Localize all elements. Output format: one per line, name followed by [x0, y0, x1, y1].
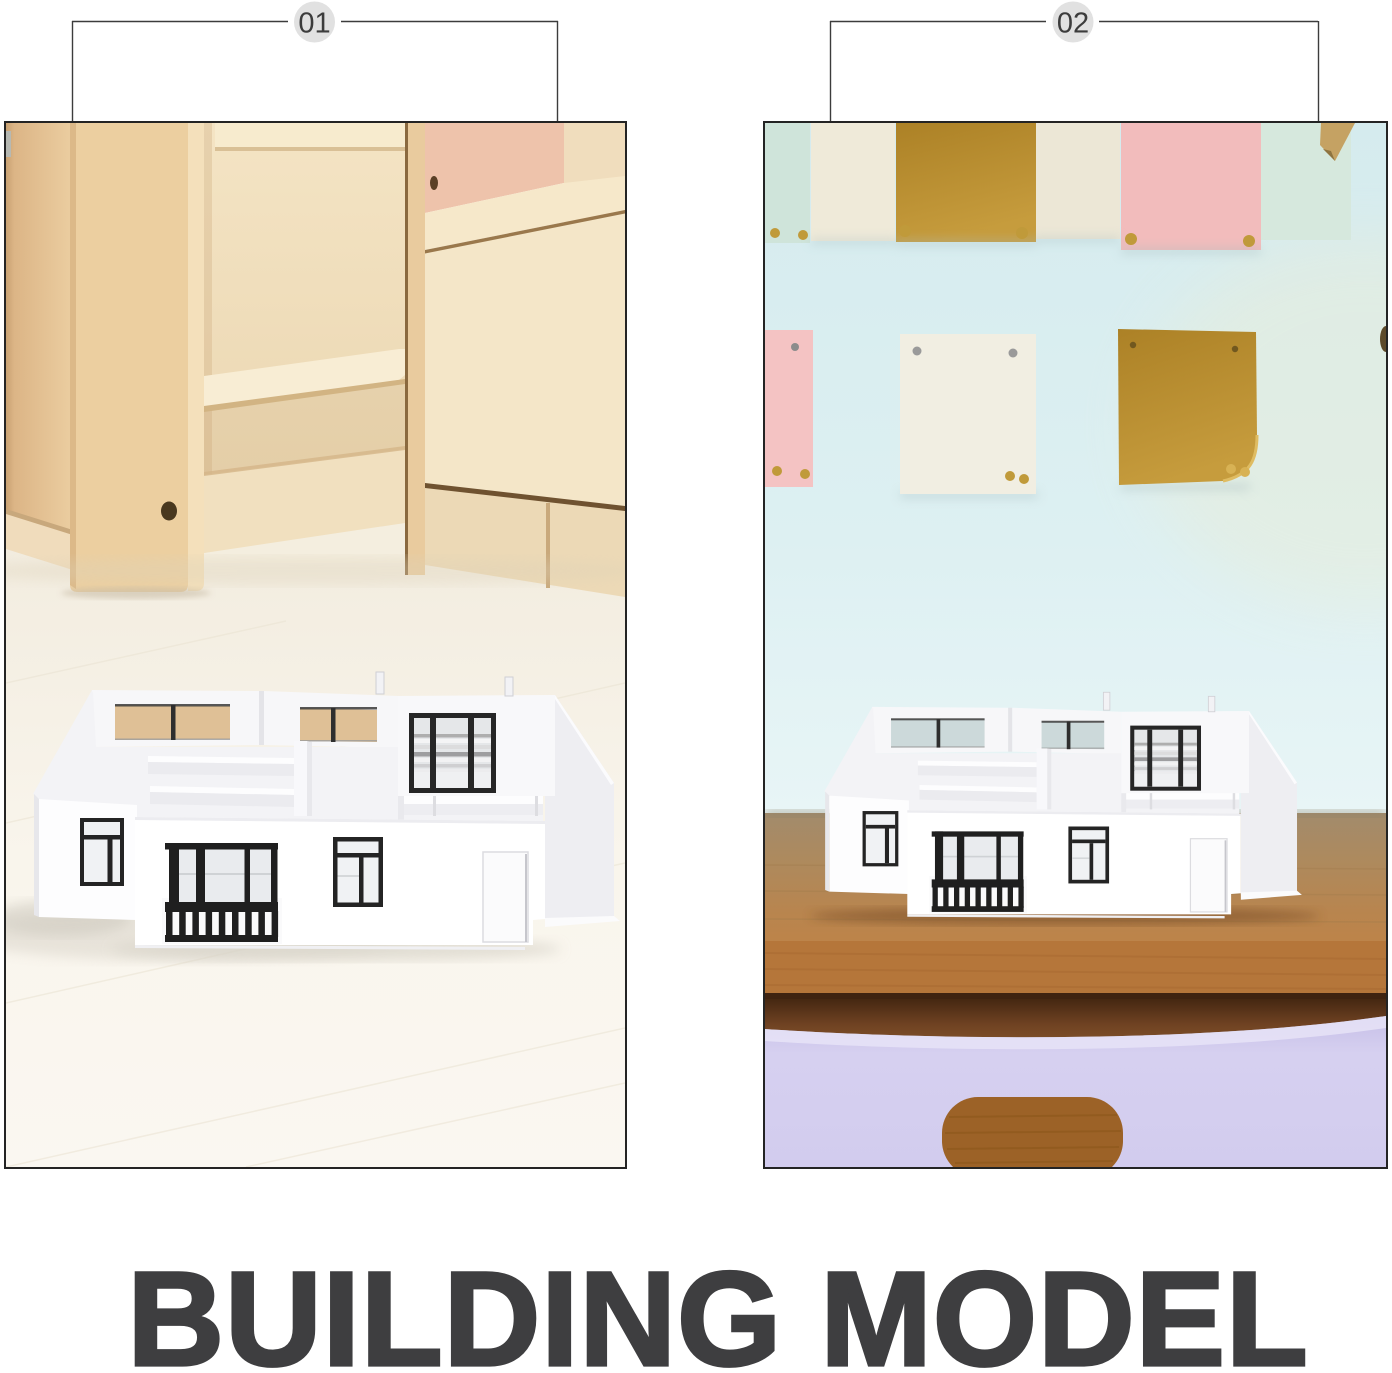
- svg-text:02: 02: [1057, 8, 1089, 40]
- svg-text:01: 01: [298, 8, 330, 40]
